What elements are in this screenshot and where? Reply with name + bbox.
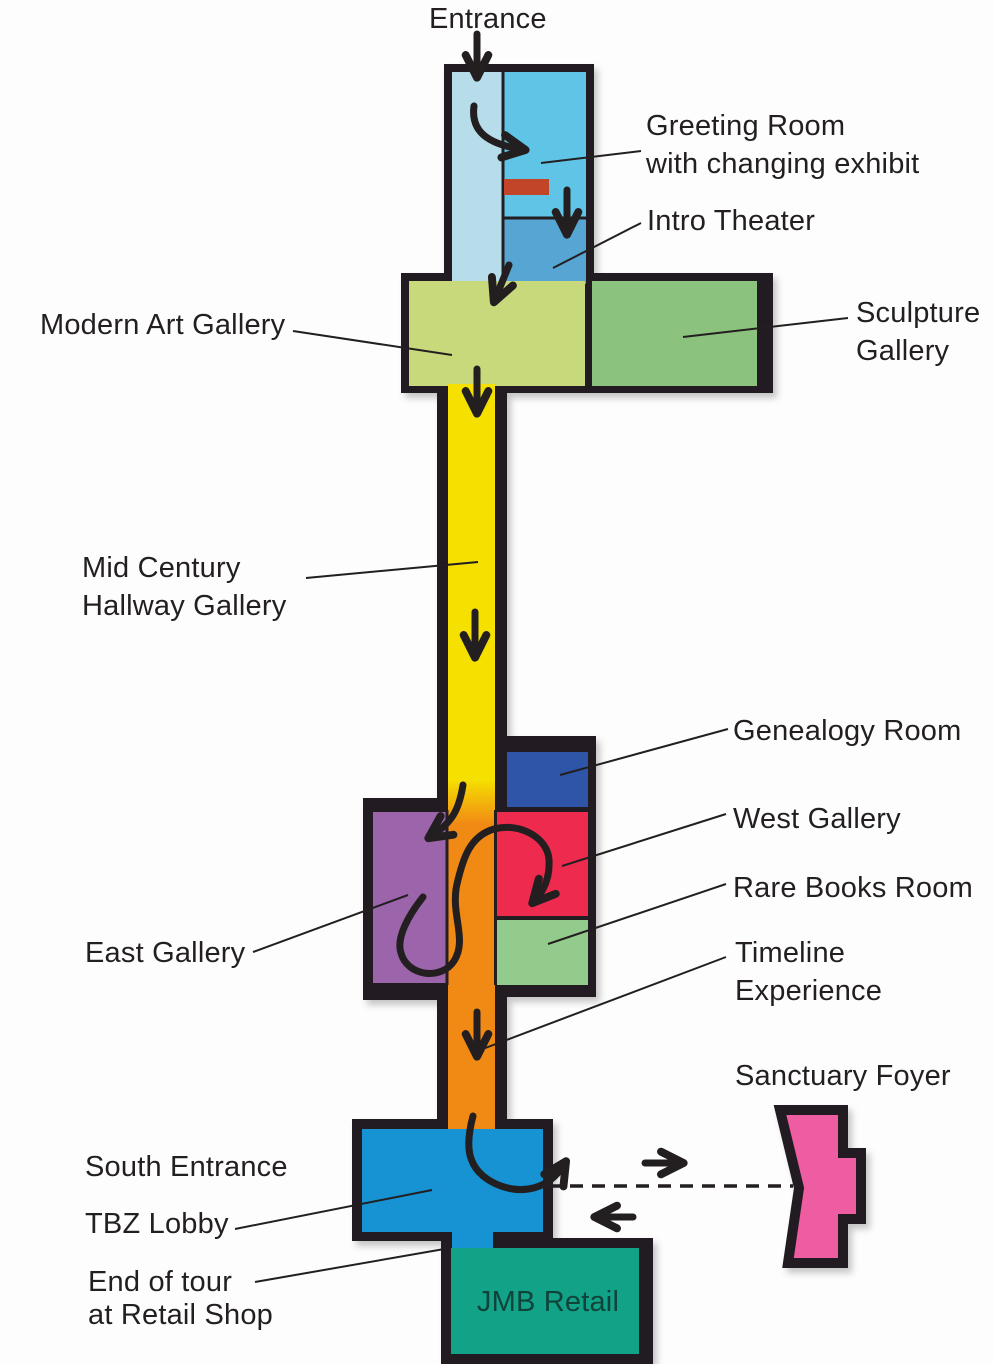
label-end-of-tour: End of tour at Retail Shop xyxy=(88,1266,273,1332)
label-west: West Gallery xyxy=(733,800,901,838)
label-rare: Rare Books Room xyxy=(733,869,973,907)
museum-tour-map: Entrance Greeting Room with changing exh… xyxy=(0,0,994,1364)
room-entrance-corridor xyxy=(452,72,503,284)
label-greeting: Greeting Room with changing exhibit xyxy=(646,107,919,183)
partition-west-corridor xyxy=(494,810,497,985)
room-intro-theater xyxy=(503,218,586,284)
partition-east-corridor xyxy=(446,810,449,985)
room-genealogy xyxy=(507,752,588,807)
label-genealogy: Genealogy Room xyxy=(733,712,962,750)
partition-greeting-intro xyxy=(503,217,586,220)
room-rare-books xyxy=(497,920,588,985)
leader-line-end-of-tour xyxy=(255,1248,450,1282)
label-sanctuary: Sanctuary Foyer xyxy=(735,1057,951,1095)
room-hallway-timeline-corridor xyxy=(448,384,495,1130)
label-timeline: Timeline Experience xyxy=(735,934,882,1010)
label-jmb-retail: JMB Retail xyxy=(477,1283,619,1321)
label-midcentury: Mid Century Hallway Gallery xyxy=(82,549,286,625)
room-lobby xyxy=(362,1129,543,1232)
label-south-entrance: South Entrance xyxy=(85,1148,288,1186)
label-tbz-lobby: TBZ Lobby xyxy=(85,1205,229,1243)
label-east: East Gallery xyxy=(85,934,245,972)
label-modern: Modern Art Gallery xyxy=(40,306,285,344)
label-entrance: Entrance xyxy=(429,0,547,38)
partition-corridor-greeting xyxy=(502,72,505,284)
exhibit-desk xyxy=(504,179,549,195)
label-intro: Intro Theater xyxy=(647,202,815,240)
partition-west-rare xyxy=(497,916,588,919)
label-sculpture: Sculpture Gallery xyxy=(856,294,980,370)
room-sculpture xyxy=(592,281,757,386)
